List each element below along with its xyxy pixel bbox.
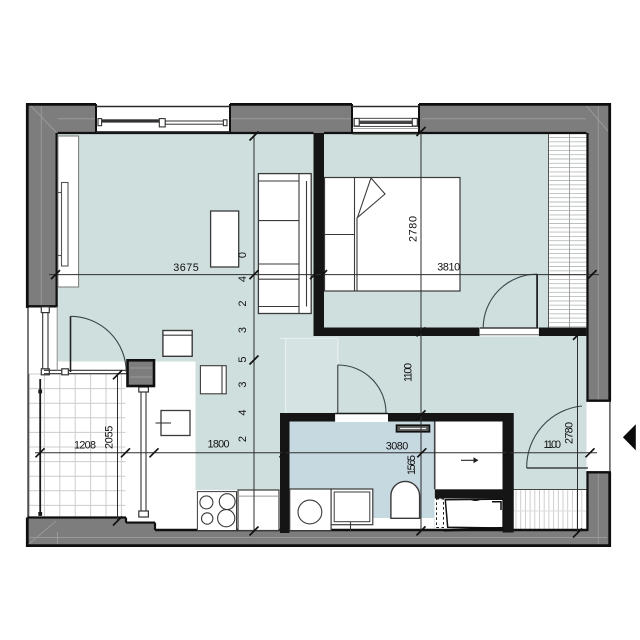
svg-text:1100: 1100: [544, 439, 562, 451]
svg-text:3: 3: [237, 381, 249, 387]
svg-text:4: 4: [237, 409, 249, 415]
svg-text:1208: 1208: [74, 440, 96, 452]
svg-text:2: 2: [237, 436, 249, 442]
svg-text:2055: 2055: [104, 426, 116, 450]
svg-text:1800: 1800: [208, 438, 230, 450]
svg-text:4: 4: [237, 276, 249, 282]
svg-text:3: 3: [237, 327, 249, 333]
svg-text:2780: 2780: [408, 216, 420, 242]
svg-text:0: 0: [237, 252, 249, 258]
svg-text:1565: 1565: [406, 455, 418, 475]
svg-text:1100: 1100: [403, 363, 415, 382]
svg-text:3810: 3810: [437, 261, 460, 273]
svg-text:2780: 2780: [564, 422, 576, 444]
svg-text:3080: 3080: [386, 440, 409, 452]
svg-text:3675: 3675: [173, 262, 199, 274]
svg-text:2: 2: [237, 300, 249, 306]
svg-text:5: 5: [237, 356, 249, 362]
